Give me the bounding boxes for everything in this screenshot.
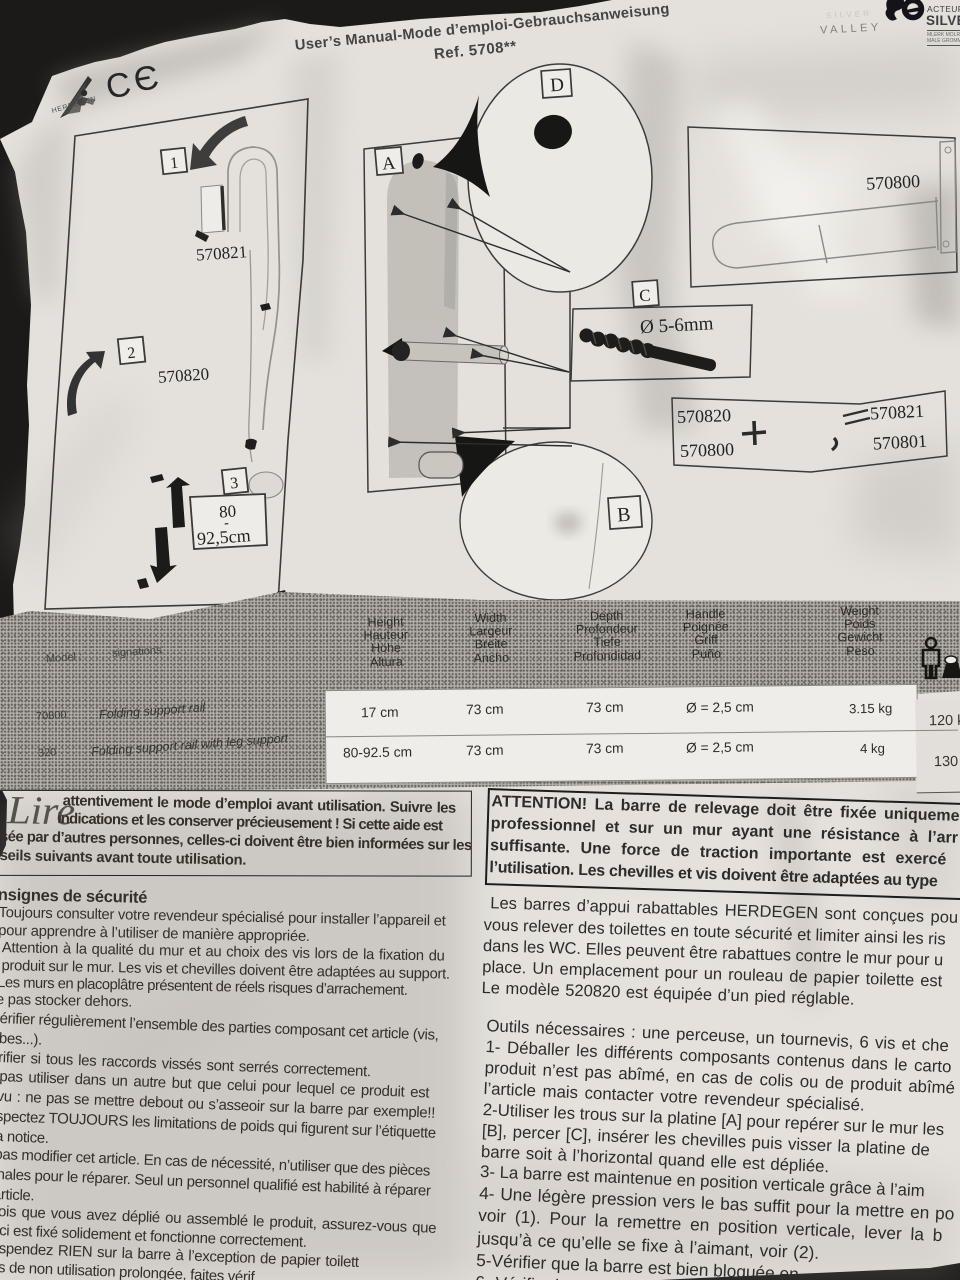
svg-text:570821: 570821 [196,242,248,265]
svg-text:A: A [381,153,396,174]
svg-text:Ø 5-6mm: Ø 5-6mm [640,313,715,338]
svg-text:570821: 570821 [870,401,925,424]
svg-text:570820: 570820 [677,405,732,427]
svg-text:570801: 570801 [872,431,927,454]
svg-text:570800: 570800 [680,439,735,461]
svg-text:B: B [616,504,631,527]
svg-text:C: C [639,286,652,306]
svg-text:D: D [549,74,564,96]
svg-text:570800: 570800 [866,171,921,194]
svg-text:92,5cm: 92,5cm [196,525,251,549]
svg-text:570820: 570820 [158,364,210,387]
